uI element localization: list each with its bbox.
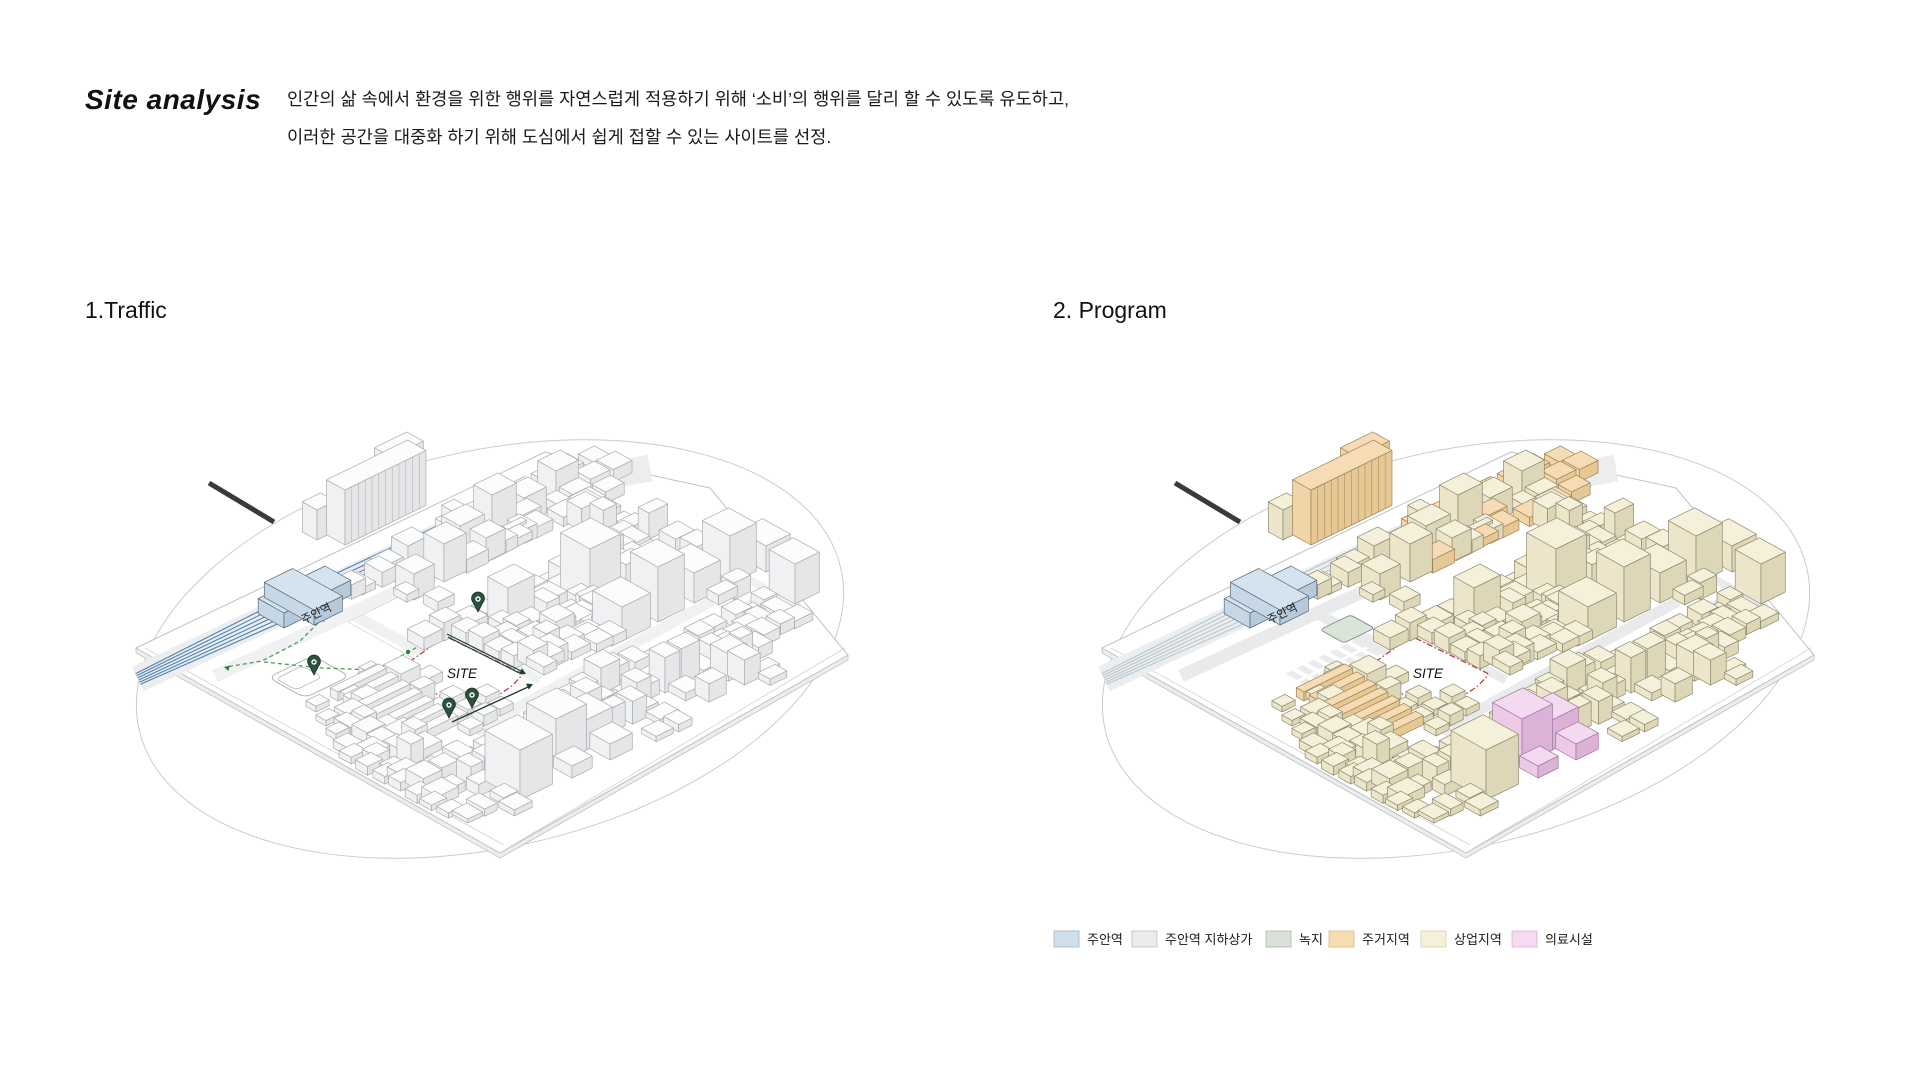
svg-text:주안역 지하상가: 주안역 지하상가 <box>1165 932 1252 947</box>
svg-text:녹지: 녹지 <box>1299 932 1323 947</box>
svg-text:SITE: SITE <box>447 666 478 681</box>
svg-text:의료시설: 의료시설 <box>1545 932 1593 947</box>
svg-text:주안역: 주안역 <box>1087 932 1123 947</box>
svg-text:주거지역: 주거지역 <box>1362 932 1410 947</box>
svg-text:SITE: SITE <box>1413 666 1444 681</box>
svg-text:상업지역: 상업지역 <box>1454 932 1502 947</box>
